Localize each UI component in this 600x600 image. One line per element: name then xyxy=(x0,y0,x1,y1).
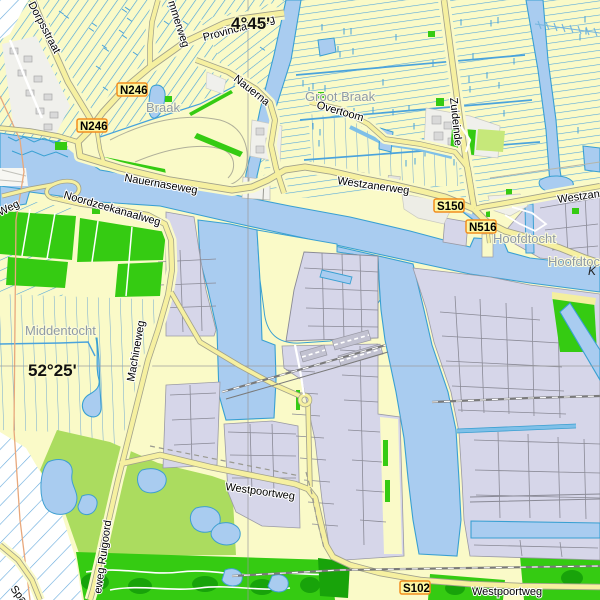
svg-text:S102: S102 xyxy=(403,583,430,595)
svg-text:N246: N246 xyxy=(80,121,108,133)
svg-text:Hoofdtocht: Hoofdtocht xyxy=(493,231,556,246)
svg-text:52°25': 52°25' xyxy=(28,361,77,380)
svg-text:N516: N516 xyxy=(469,222,497,234)
svg-text:4°45': 4°45' xyxy=(231,14,270,33)
svg-text:K: K xyxy=(588,264,597,278)
svg-text:N246: N246 xyxy=(120,85,148,97)
svg-text:Middentocht: Middentocht xyxy=(25,323,96,338)
svg-text:S150: S150 xyxy=(437,201,464,213)
svg-text:Westpoortweg: Westpoortweg xyxy=(472,586,542,598)
svg-text:Braak: Braak xyxy=(146,100,180,115)
svg-text:Groot Braak: Groot Braak xyxy=(305,89,376,104)
